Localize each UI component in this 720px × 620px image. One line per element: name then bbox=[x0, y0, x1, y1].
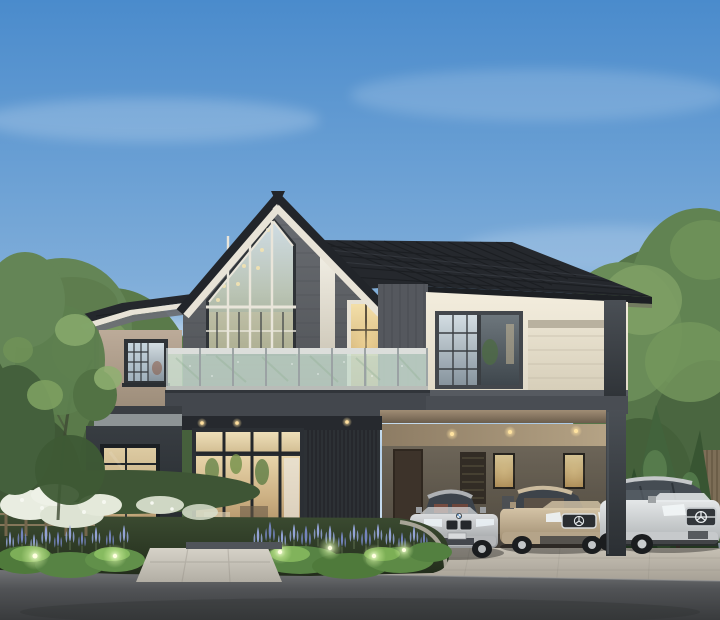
render-viewport bbox=[0, 0, 720, 620]
uplight-icon bbox=[113, 554, 117, 558]
uplight-icon bbox=[402, 548, 406, 552]
house-render-scene bbox=[0, 0, 720, 620]
side-mirror bbox=[480, 507, 486, 513]
glass-balustrade bbox=[166, 354, 428, 388]
bmw-roundel-icon bbox=[456, 513, 461, 518]
upper-right-window bbox=[435, 311, 523, 389]
downlight-icon bbox=[574, 429, 578, 433]
balcony bbox=[166, 348, 428, 391]
entry-step bbox=[186, 542, 282, 549]
entry-soffit bbox=[182, 416, 382, 430]
upper-right-wall bbox=[426, 292, 628, 402]
gable-post bbox=[320, 256, 335, 354]
headlight bbox=[662, 504, 686, 516]
uplight-icon bbox=[33, 554, 38, 559]
uplight-icon bbox=[278, 550, 282, 554]
blind-covered-window bbox=[528, 320, 606, 390]
upper-left-window bbox=[122, 339, 170, 387]
license-plate bbox=[448, 533, 466, 539]
side-mirror bbox=[510, 502, 516, 508]
balcony-top-rail bbox=[166, 348, 428, 354]
kidney-grille bbox=[460, 520, 472, 530]
uplight-icon bbox=[328, 546, 332, 550]
downlight-icon bbox=[508, 430, 512, 434]
side-mirror bbox=[416, 507, 422, 513]
carport-beam bbox=[380, 410, 608, 423]
carport-post bbox=[606, 410, 626, 556]
downlight-icon bbox=[235, 421, 239, 425]
downlight-icon bbox=[345, 420, 349, 424]
downlight-icon bbox=[200, 421, 204, 425]
kidney-grille bbox=[446, 520, 458, 530]
downlight-icon bbox=[450, 432, 454, 436]
walkway bbox=[136, 548, 282, 582]
uplight-icon bbox=[372, 554, 376, 558]
side-mirror bbox=[648, 496, 656, 503]
